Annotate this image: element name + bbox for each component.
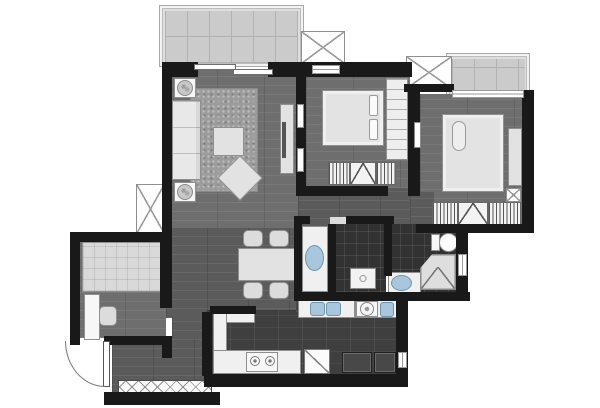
bedroom1-closet-mid xyxy=(350,162,376,185)
ac-platform-top xyxy=(301,31,345,64)
washing-machine xyxy=(304,349,330,374)
wall-bottom xyxy=(204,374,408,387)
study-chair xyxy=(99,306,117,326)
master-closet-right xyxy=(488,202,521,225)
laundry-cabinet-1 xyxy=(342,352,372,373)
dining-chair-2 xyxy=(269,230,289,247)
wall-corridor-south-2 xyxy=(346,216,394,224)
master-bay-floor xyxy=(452,59,525,94)
floor-plan xyxy=(0,0,600,408)
wall-study-east-upper xyxy=(160,242,172,308)
balcony-floor xyxy=(165,11,298,63)
wall-entry-bottom xyxy=(104,392,220,405)
study-bed xyxy=(82,242,161,292)
dining-table xyxy=(238,248,296,281)
wall-bath2-west xyxy=(328,224,336,292)
ac-platform-left xyxy=(136,184,165,234)
dining-chair-3 xyxy=(243,282,263,299)
wall-kitchen-west xyxy=(202,312,212,376)
window-master-bay xyxy=(452,90,524,98)
wall-west-upper xyxy=(162,62,172,188)
wall-corridor-south-1 xyxy=(294,216,310,224)
sliding-door-panel-1 xyxy=(194,64,236,70)
master-pillow xyxy=(452,121,466,151)
burner-right xyxy=(265,356,275,366)
tv xyxy=(282,122,286,158)
bedroom1-closet-left xyxy=(328,162,350,185)
master-bath-basin xyxy=(391,275,412,291)
bathroom2-door-gap xyxy=(330,217,346,224)
plant-top xyxy=(177,80,193,96)
laundry-washer-door xyxy=(360,302,374,316)
bathroom2-shower-tray xyxy=(350,268,376,289)
vanity-basin xyxy=(305,245,324,271)
wall-study-west xyxy=(70,232,80,344)
sofa xyxy=(172,100,201,180)
window-laundry xyxy=(398,352,407,368)
coffee-table xyxy=(213,127,244,156)
dining-chair-1 xyxy=(243,230,263,247)
master-dresser xyxy=(508,128,522,186)
wall-study-top xyxy=(70,232,172,242)
sliding-door-panel-2 xyxy=(233,69,273,75)
curtain-mark-1 xyxy=(297,104,304,128)
laundry-cabinet-2 xyxy=(374,352,396,373)
wall-vanity-west xyxy=(294,222,302,294)
wall-west-lower xyxy=(162,186,172,236)
master-door-floor xyxy=(410,192,434,226)
wall-bath-south xyxy=(294,292,470,301)
plant-bottom xyxy=(177,184,193,200)
wall-master-east xyxy=(522,90,534,233)
kitchen-sink-right xyxy=(326,302,341,316)
bedroom1-pillow-2 xyxy=(369,119,378,140)
curtain-mark-2 xyxy=(297,148,304,172)
wall-bedroom1-south xyxy=(296,186,388,196)
dining-chair-4 xyxy=(269,282,289,299)
wall-study-bottom-right xyxy=(104,336,172,345)
wall-master-south xyxy=(416,224,528,233)
bedroom1-closet-right xyxy=(376,162,396,185)
wall-bedroom1-west xyxy=(296,70,306,196)
wall-bath-divider xyxy=(384,224,392,276)
window-master-bath xyxy=(458,254,467,276)
master-closet-mid xyxy=(458,202,488,225)
master-nightstand xyxy=(506,188,521,202)
entry-door-arc xyxy=(65,341,105,387)
window-bedroom1 xyxy=(312,65,340,74)
curtain-mark-3 xyxy=(414,122,421,148)
laundry-sink xyxy=(380,302,394,317)
master-closet-left xyxy=(432,202,458,225)
wall-kitchen-back xyxy=(210,306,256,314)
bedroom1-pillow-1 xyxy=(369,95,378,116)
burner-left xyxy=(250,356,260,366)
wall-master-north-west xyxy=(404,84,454,92)
kitchen-sink-left xyxy=(310,302,325,316)
study-desk xyxy=(84,294,100,340)
